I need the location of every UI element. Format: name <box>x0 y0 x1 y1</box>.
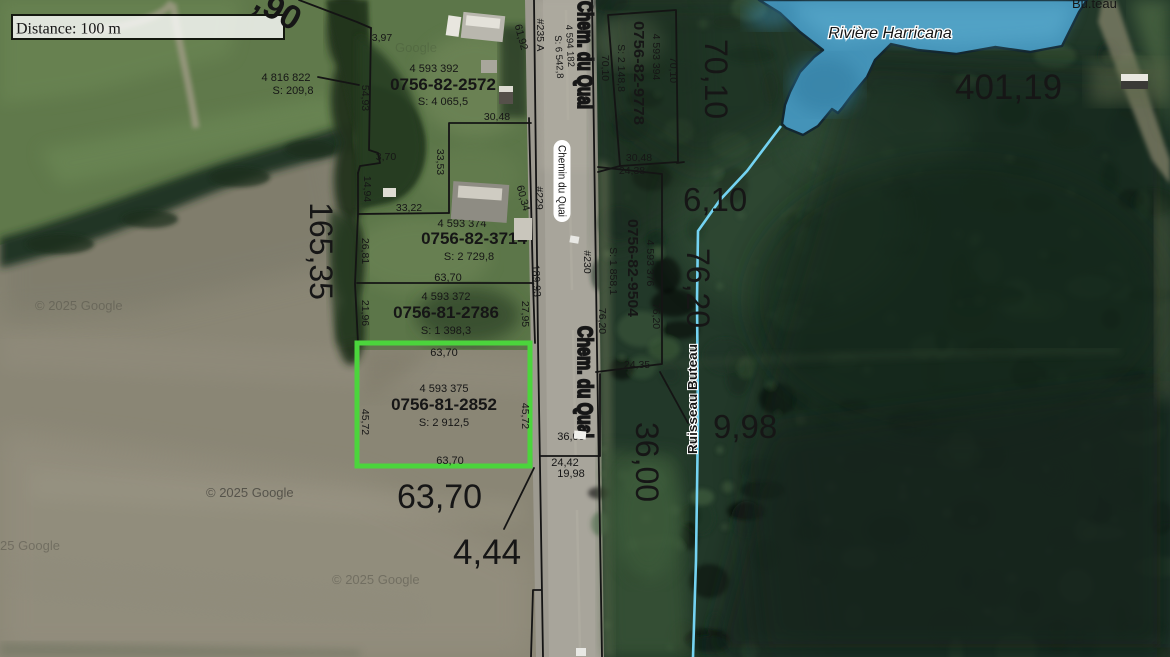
svg-text:27,95: 27,95 <box>519 301 531 327</box>
svg-text:S: 2 912,5: S: 2 912,5 <box>419 417 469 429</box>
svg-text:0756-82-9504: 0756-82-9504 <box>624 219 641 318</box>
svg-text:401,19: 401,19 <box>955 68 1062 107</box>
svg-text:33,53: 33,53 <box>434 149 446 175</box>
svg-text:S: 1 398,3: S: 1 398,3 <box>421 325 471 337</box>
svg-text:9,98: 9,98 <box>713 408 777 445</box>
svg-text:26,81: 26,81 <box>359 238 371 264</box>
svg-text:0756-81-2852: 0756-81-2852 <box>391 395 497 414</box>
svg-text:0756-82-3714: 0756-82-3714 <box>421 229 527 248</box>
svg-text:6,10: 6,10 <box>683 181 747 218</box>
svg-text:4 593 372: 4 593 372 <box>422 291 471 303</box>
svg-text:24,35: 24,35 <box>624 359 650 371</box>
svg-text:25 Google: 25 Google <box>0 538 60 553</box>
svg-text:0756-81-2786: 0756-81-2786 <box>393 303 499 322</box>
svg-text:21,96: 21,96 <box>359 300 371 326</box>
svg-text:Chemin du Quai: Chemin du Quai <box>556 145 568 217</box>
svg-text:54,93: 54,93 <box>359 85 371 111</box>
svg-text:14,94: 14,94 <box>361 176 373 202</box>
svg-text:#229: #229 <box>533 186 545 210</box>
svg-text:36,00: 36,00 <box>629 422 665 502</box>
svg-text:3,70: 3,70 <box>376 151 397 163</box>
svg-text:4 593 392: 4 593 392 <box>410 63 459 75</box>
svg-text:4 593 375: 4 593 375 <box>420 383 469 395</box>
svg-text:165,35: 165,35 <box>303 202 339 300</box>
svg-text:S: 209,8: S: 209,8 <box>273 85 314 97</box>
svg-text:Chem. du Quai: Chem. du Quai <box>573 1 596 109</box>
svg-text:Bu.teau: Bu.teau <box>1072 0 1117 11</box>
svg-text:0756-82-2572: 0756-82-2572 <box>390 75 496 94</box>
svg-text:63,70: 63,70 <box>436 455 464 467</box>
svg-text:3,97: 3,97 <box>372 32 393 44</box>
svg-text:Ruisseau Buteau: Ruisseau Buteau <box>686 344 700 454</box>
svg-text:30,48: 30,48 <box>626 152 652 164</box>
svg-text:4 816 822: 4 816 822 <box>262 72 311 84</box>
svg-text:4 593 376: 4 593 376 <box>644 240 656 287</box>
svg-text:© 2025 Google: © 2025 Google <box>332 572 420 587</box>
svg-text:S: 6 542,8: S: 6 542,8 <box>552 35 565 79</box>
svg-text:© 2025 Google: © 2025 Google <box>206 485 294 500</box>
svg-text:4 593 394: 4 593 394 <box>650 34 662 81</box>
svg-text:Google: Google <box>395 40 437 55</box>
svg-text:Rivière Harricana: Rivière Harricana <box>828 25 952 42</box>
svg-text:#235 A: #235 A <box>534 19 546 52</box>
svg-text:S: 1 858,1: S: 1 858,1 <box>607 247 619 295</box>
svg-text:S: 4 065,5: S: 4 065,5 <box>418 96 468 108</box>
svg-text:19,98: 19,98 <box>557 468 585 480</box>
svg-text:63,70: 63,70 <box>434 272 462 284</box>
svg-text:70,10: 70,10 <box>698 39 734 119</box>
svg-text:30,48: 30,48 <box>484 111 510 123</box>
svg-text:189,93: 189,93 <box>529 264 543 297</box>
svg-text:4,44: 4,44 <box>453 533 521 572</box>
svg-text:70,10: 70,10 <box>667 57 679 83</box>
svg-text:45,72: 45,72 <box>519 403 531 429</box>
svg-text:63,70: 63,70 <box>397 478 482 516</box>
svg-text:24,38: 24,38 <box>619 165 645 177</box>
svg-text:S: 2 729,8: S: 2 729,8 <box>444 251 494 263</box>
svg-text:70,10: 70,10 <box>599 55 611 81</box>
svg-text:Chem. du Quai: Chem. du Quai <box>573 326 596 438</box>
svg-text:33,22: 33,22 <box>396 202 422 214</box>
svg-text:S: 2 148,8: S: 2 148,8 <box>615 44 627 92</box>
svg-text:© 2025 Google: © 2025 Google <box>35 298 123 313</box>
svg-text:0756-82-9778: 0756-82-9778 <box>630 21 647 125</box>
svg-text:63,70: 63,70 <box>430 347 458 359</box>
svg-text:76,20: 76,20 <box>680 248 716 328</box>
svg-text:Distance: 100 m: Distance: 100 m <box>16 21 121 38</box>
svg-text:45,72: 45,72 <box>359 409 371 435</box>
svg-text:#230: #230 <box>581 250 593 274</box>
svg-text:76,20: 76,20 <box>650 303 662 329</box>
svg-text:76,20: 76,20 <box>596 308 608 334</box>
